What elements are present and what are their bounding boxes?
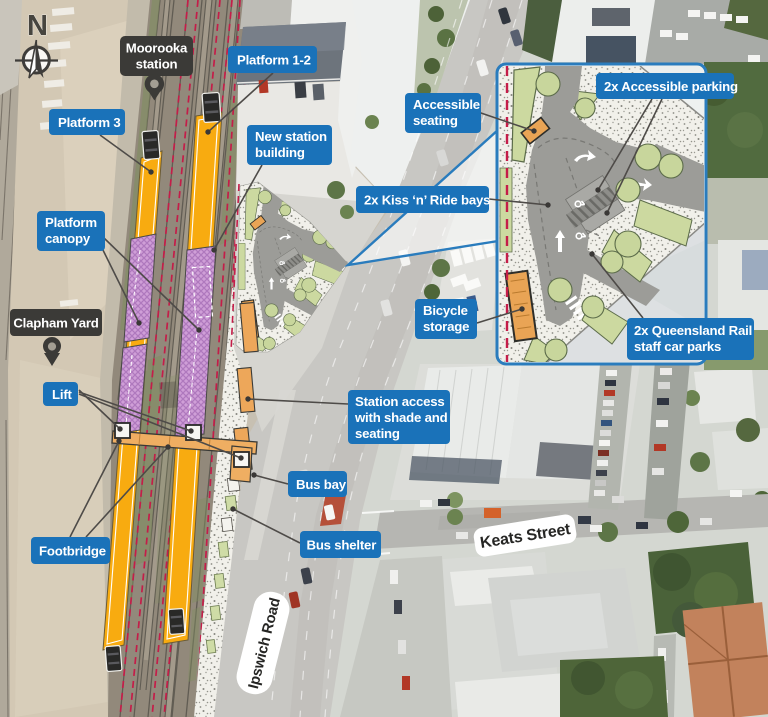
svg-text:Lift: Lift <box>52 387 73 402</box>
svg-text:seating: seating <box>355 426 400 441</box>
svg-text:Accessible: Accessible <box>413 97 480 112</box>
svg-text:Platform: Platform <box>45 215 97 230</box>
svg-text:building: building <box>255 145 305 160</box>
svg-text:storage: storage <box>423 319 469 334</box>
svg-text:2x Accessible parking: 2x Accessible parking <box>604 79 738 94</box>
svg-text:Bicycle: Bicycle <box>423 303 468 318</box>
svg-text:Footbridge: Footbridge <box>39 544 106 559</box>
svg-text:Bus shelter: Bus shelter <box>307 538 377 553</box>
svg-text:canopy: canopy <box>45 231 91 246</box>
svg-text:2x Kiss ‘n’ Ride bays: 2x Kiss ‘n’ Ride bays <box>364 193 490 208</box>
svg-text:2x Queensland Rail: 2x Queensland Rail <box>634 323 752 338</box>
svg-text:Platform 3: Platform 3 <box>58 115 121 130</box>
svg-text:Platform 1-2: Platform 1-2 <box>237 53 311 68</box>
svg-text:Moorooka: Moorooka <box>126 41 188 56</box>
svg-text:seating: seating <box>413 113 458 128</box>
svg-text:Bus bay: Bus bay <box>296 477 347 492</box>
svg-text:station: station <box>136 57 178 72</box>
svg-text:Clapham Yard: Clapham Yard <box>13 316 98 331</box>
svg-text:New station: New station <box>255 129 327 144</box>
svg-text:N: N <box>27 10 48 42</box>
svg-text:Station access: Station access <box>355 394 445 409</box>
svg-text:with shade and: with shade and <box>354 410 448 425</box>
svg-text:staff car parks: staff car parks <box>634 339 721 354</box>
